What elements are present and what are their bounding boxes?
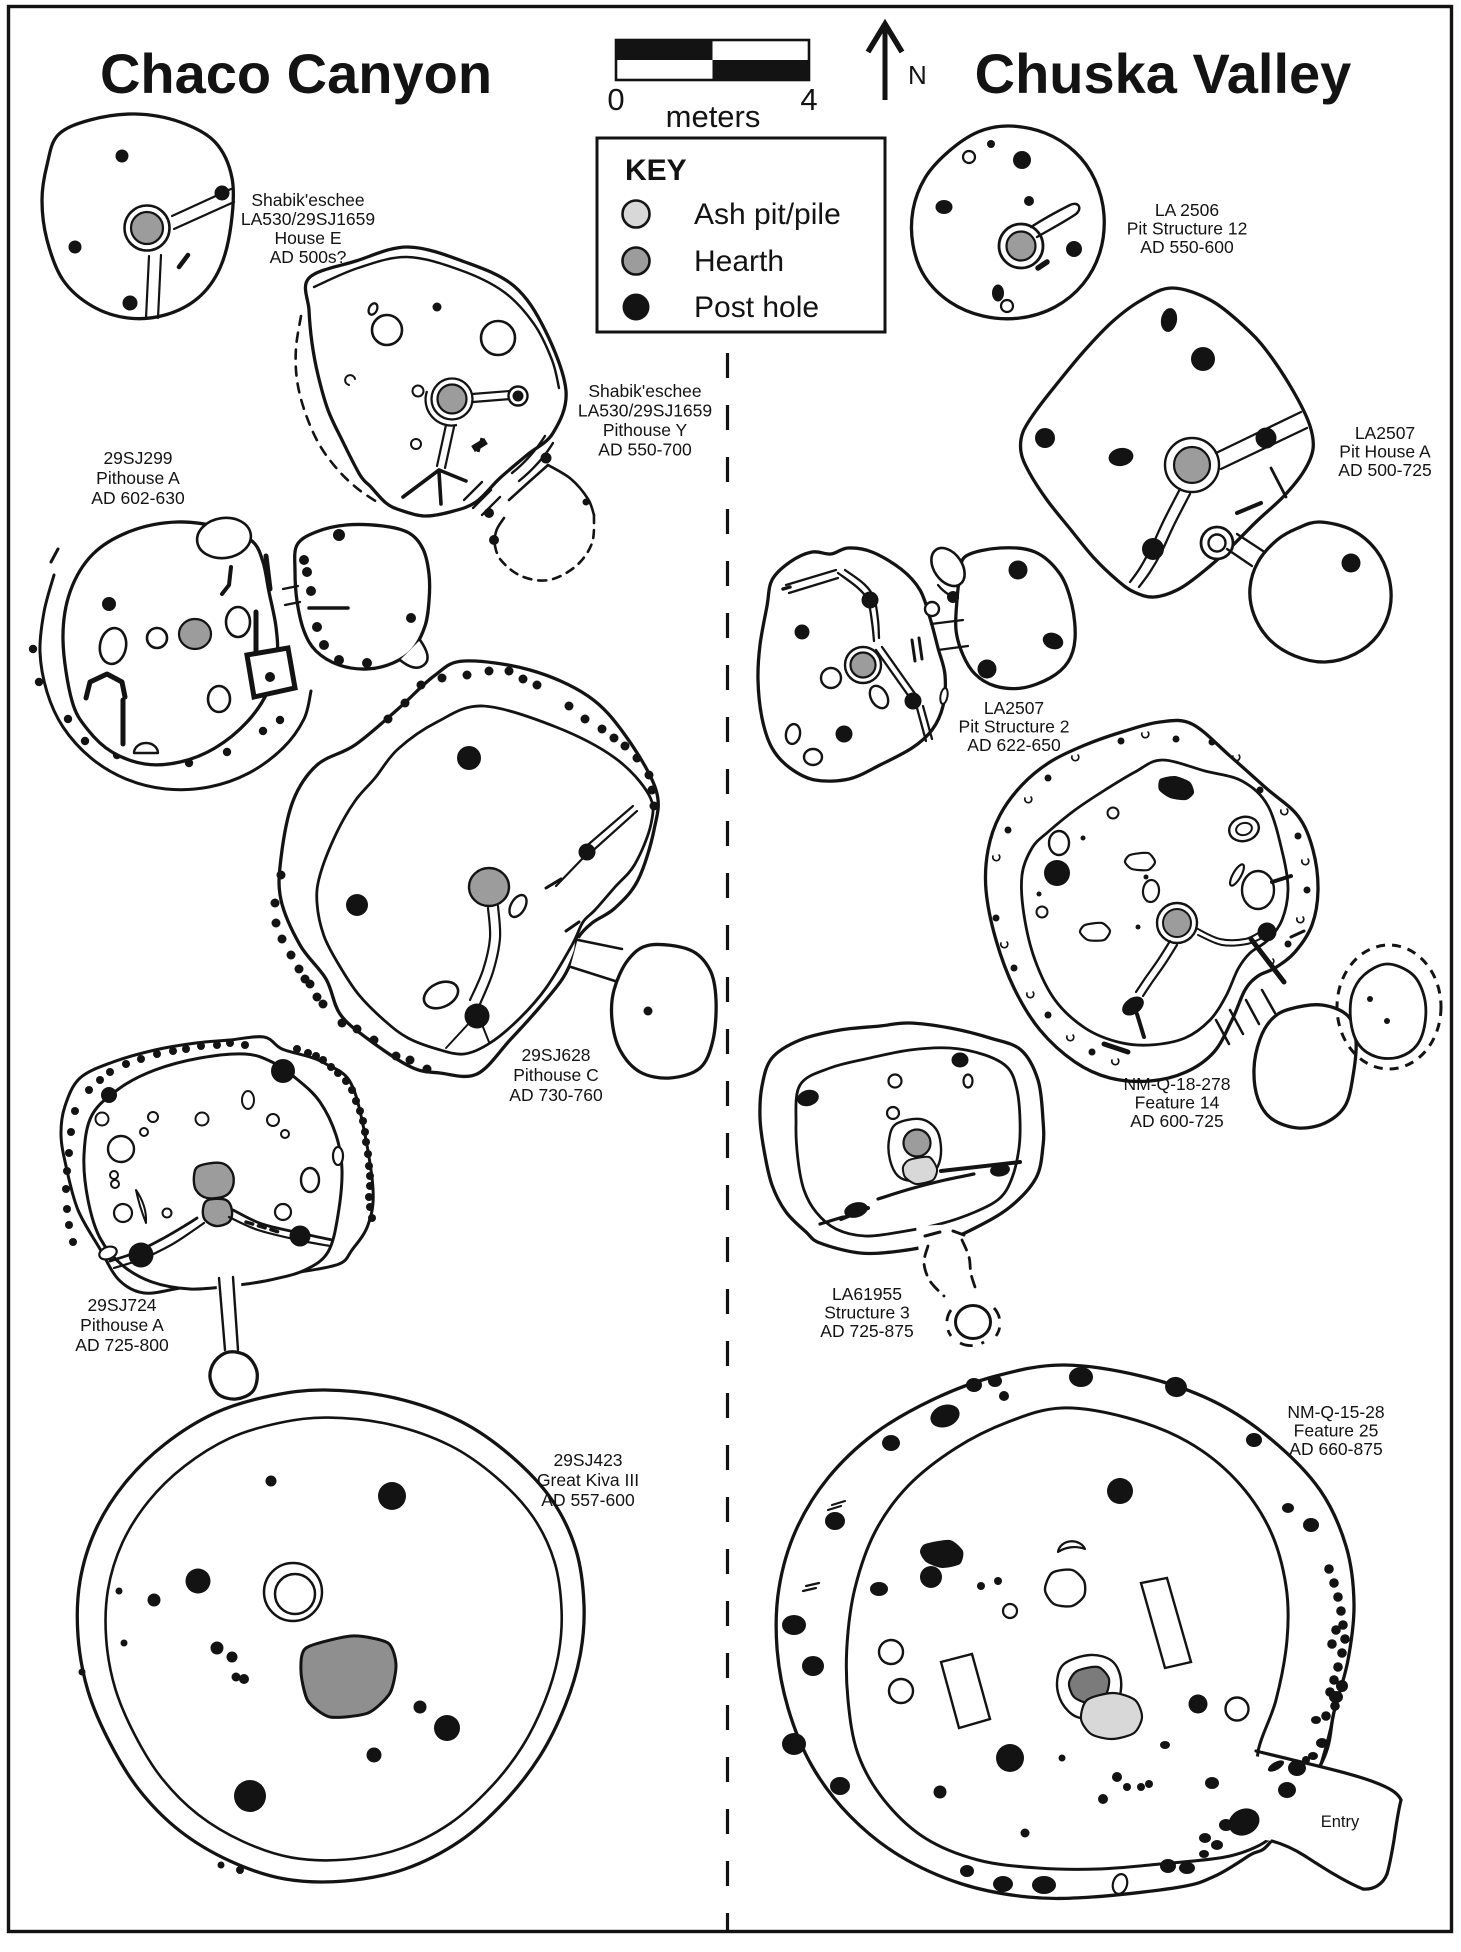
svg-text:Pithouse Y: Pithouse Y xyxy=(603,420,688,440)
svg-text:Feature 14: Feature 14 xyxy=(1135,1093,1220,1113)
svg-text:AD 660-875: AD 660-875 xyxy=(1289,1439,1382,1459)
svg-text:Pithouse C: Pithouse C xyxy=(513,1065,599,1085)
svg-text:Chaco Canyon: Chaco Canyon xyxy=(100,42,492,105)
svg-text:AD 557-600: AD 557-600 xyxy=(541,1490,635,1510)
svg-text:Feature 25: Feature 25 xyxy=(1294,1421,1379,1441)
svg-text:0: 0 xyxy=(607,82,624,117)
svg-text:Pit Structure 2: Pit Structure 2 xyxy=(959,717,1070,737)
svg-text:N: N xyxy=(908,60,927,90)
svg-text:AD 500-725: AD 500-725 xyxy=(1338,460,1431,480)
svg-text:LA2507: LA2507 xyxy=(1355,423,1415,443)
svg-text:AD 500s?: AD 500s? xyxy=(270,247,347,267)
svg-text:29SJ299: 29SJ299 xyxy=(103,448,172,468)
svg-text:AD 730-760: AD 730-760 xyxy=(509,1085,603,1105)
svg-text:AD 622-650: AD 622-650 xyxy=(967,735,1061,755)
svg-text:29SJ724: 29SJ724 xyxy=(87,1295,156,1315)
svg-text:LA530/29SJ1659: LA530/29SJ1659 xyxy=(578,401,712,421)
svg-text:AD 550-700: AD 550-700 xyxy=(598,440,692,460)
svg-text:Hearth: Hearth xyxy=(694,245,784,278)
svg-text:Post hole: Post hole xyxy=(694,291,819,324)
svg-text:AD 550-600: AD 550-600 xyxy=(1140,237,1234,257)
svg-text:AD 725-800: AD 725-800 xyxy=(75,1335,169,1355)
svg-text:Chuska Valley: Chuska Valley xyxy=(975,42,1352,105)
svg-text:Pithouse A: Pithouse A xyxy=(80,1315,164,1335)
svg-text:Structure 3: Structure 3 xyxy=(824,1303,910,1323)
svg-text:LA 2506: LA 2506 xyxy=(1155,200,1219,220)
svg-text:Ash pit/pile: Ash pit/pile xyxy=(694,198,841,231)
svg-text:meters: meters xyxy=(666,99,761,134)
svg-text:AD 725-875: AD 725-875 xyxy=(820,1321,913,1341)
svg-text:LA61955: LA61955 xyxy=(832,1284,902,1304)
svg-text:29SJ423: 29SJ423 xyxy=(553,1450,622,1470)
svg-text:Entry: Entry xyxy=(1321,1813,1360,1831)
svg-text:4: 4 xyxy=(800,82,817,117)
svg-text:Shabik'eschee: Shabik'eschee xyxy=(588,381,701,401)
svg-text:Shabik'eschee: Shabik'eschee xyxy=(251,190,364,210)
svg-text:NM-Q-18-278: NM-Q-18-278 xyxy=(1124,1074,1231,1094)
svg-text:Pithouse A: Pithouse A xyxy=(96,468,180,488)
svg-text:29SJ628: 29SJ628 xyxy=(521,1045,590,1065)
svg-text:AD 602-630: AD 602-630 xyxy=(91,488,185,508)
svg-text:House E: House E xyxy=(274,228,341,248)
svg-text:Pit Structure 12: Pit Structure 12 xyxy=(1127,219,1248,239)
svg-text:LA2507: LA2507 xyxy=(984,698,1044,718)
svg-text:NM-Q-15-28: NM-Q-15-28 xyxy=(1287,1402,1384,1422)
svg-text:KEY: KEY xyxy=(625,154,687,187)
svg-text:LA530/29SJ1659: LA530/29SJ1659 xyxy=(241,209,375,229)
svg-text:Great Kiva III: Great Kiva III xyxy=(537,1470,639,1490)
svg-text:Pit House A: Pit House A xyxy=(1339,442,1431,462)
svg-text:AD 600-725: AD 600-725 xyxy=(1130,1111,1223,1131)
